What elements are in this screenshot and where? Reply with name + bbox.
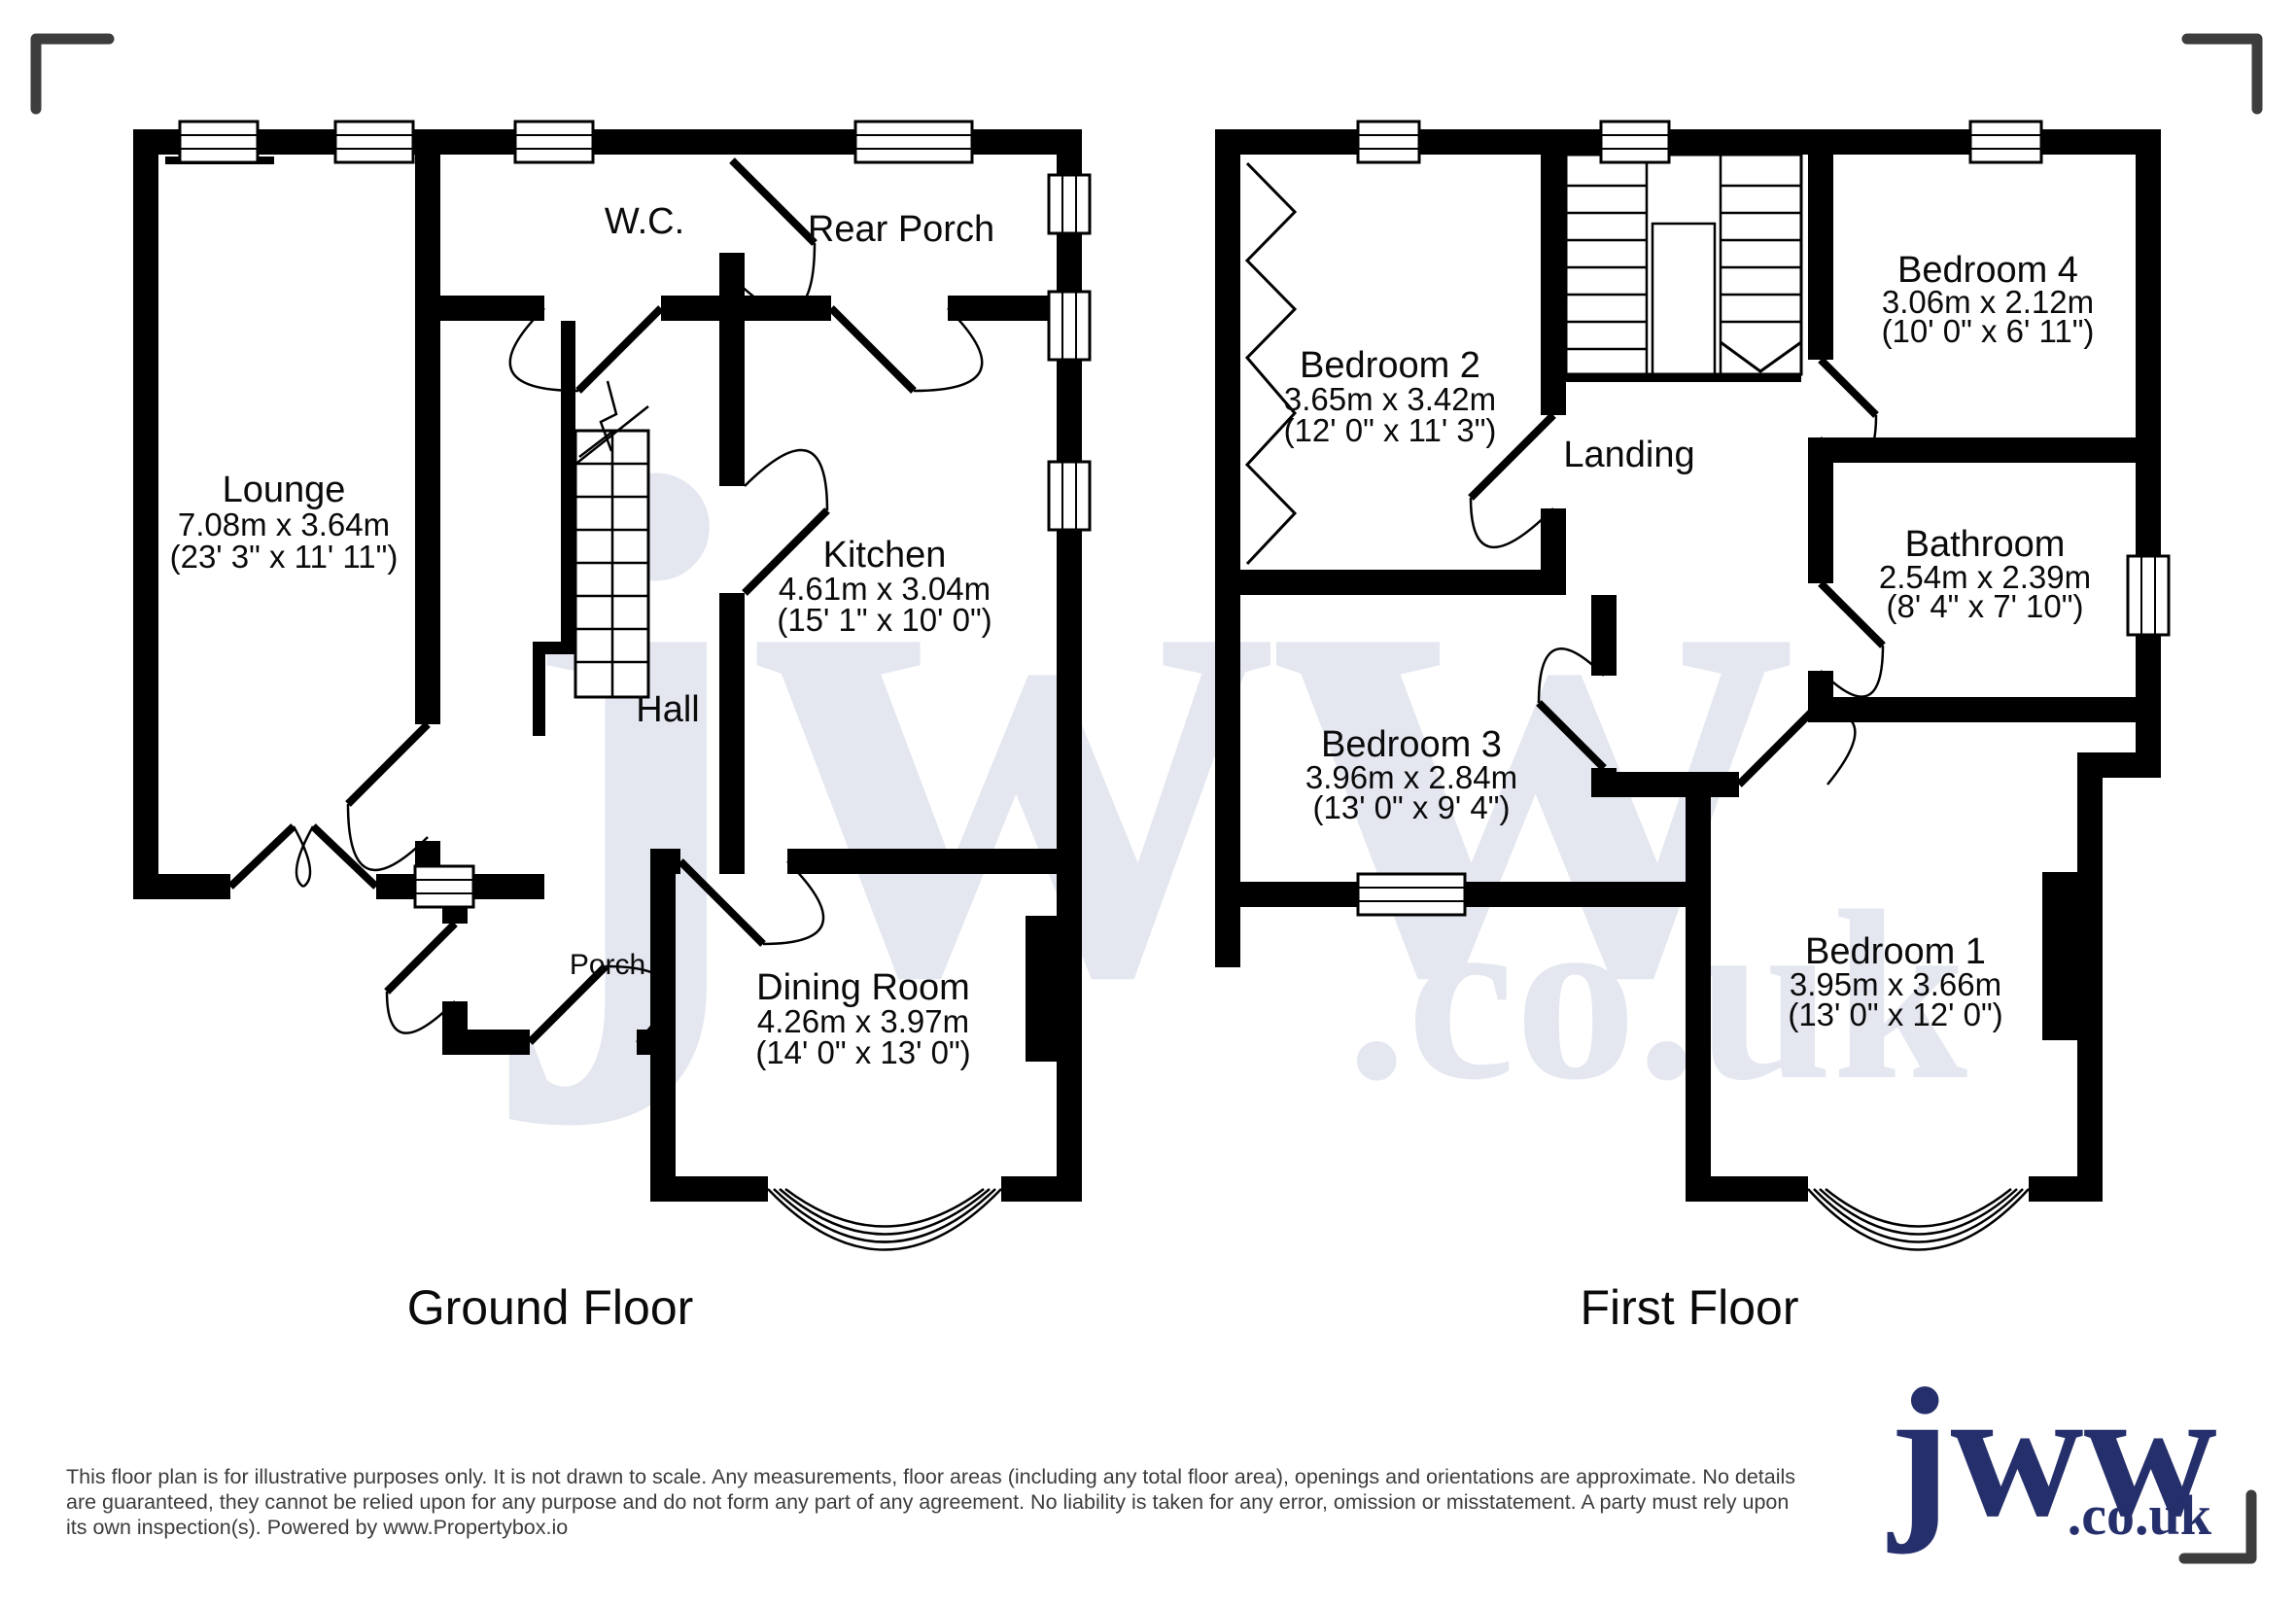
- room-dimensions-metric: 7.08m x 3.64m: [178, 507, 390, 542]
- room-label-rear-porch: Rear Porch: [808, 209, 994, 250]
- window: [335, 122, 413, 162]
- top-left-corner-mark: [36, 39, 109, 109]
- room-label-dining-room: Dining Room 4.26m x 3.97m (14' 0" x 13' …: [755, 967, 970, 1070]
- window: [1601, 122, 1669, 162]
- window: [415, 866, 473, 907]
- room-dimensions-imperial: (23' 3" x 11' 11"): [170, 539, 399, 575]
- first-floor-title: First Floor: [1581, 1280, 1799, 1335]
- room-label-bedroom1: Bedroom 1 3.95m x 3.66m (13' 0" x 12' 0"…: [1788, 931, 2002, 1032]
- room-label-bedroom3: Bedroom 3 3.96m x 2.84m (13' 0" x 9' 4"): [1305, 724, 1517, 825]
- corner-marks: [36, 39, 2257, 109]
- room-name: W.C.: [605, 201, 684, 242]
- disclaimer: This floor plan is for illustrative purp…: [66, 1465, 1795, 1539]
- window: [1049, 292, 1090, 360]
- window: [1358, 874, 1465, 915]
- floorplan-canvas: jww .co.uk: [0, 0, 2296, 1607]
- chimney-breast: [1026, 916, 1082, 1062]
- room-dimensions-imperial: (10' 0" x 6' 11"): [1882, 313, 2095, 349]
- room-name: Porch: [570, 949, 645, 981]
- disclaimer-line-1: This floor plan is for illustrative purp…: [66, 1465, 1795, 1488]
- first-floor-bay-window: [1808, 1189, 2029, 1250]
- room-name: Bedroom 2: [1300, 345, 1480, 386]
- window: [2128, 556, 2169, 635]
- window: [515, 122, 593, 162]
- brand-logo: jww .co.uk: [1887, 1351, 2251, 1558]
- room-name: Hall: [636, 689, 699, 730]
- room-name: Dining Room: [756, 967, 970, 1008]
- staircase-first: [1566, 155, 1801, 374]
- room-label-hall: Hall: [636, 689, 699, 730]
- room-label-lounge: Lounge 7.08m x 3.64m (23' 3" x 11' 11"): [170, 470, 399, 575]
- room-name: Lounge: [223, 470, 346, 510]
- room-dimensions-imperial: (12' 0" x 11' 3"): [1284, 412, 1497, 448]
- room-label-bedroom2: Bedroom 2 3.65m x 3.42m (12' 0" x 11' 3"…: [1284, 345, 1497, 448]
- logo-domain-text: .co.uk: [2068, 1484, 2212, 1547]
- ground-floor-title: Ground Floor: [407, 1280, 694, 1335]
- floorplan-page: jww .co.uk: [0, 0, 2296, 1607]
- room-label-porch: Porch: [570, 949, 645, 981]
- window: [1970, 122, 2041, 162]
- window: [1049, 175, 1090, 233]
- room-label-bathroom: Bathroom 2.54m x 2.39m (8' 4" x 7' 10"): [1879, 524, 2091, 624]
- room-dimensions-imperial: (8' 4" x 7' 10"): [1887, 588, 2084, 624]
- room-label-bedroom4: Bedroom 4 3.06m x 2.12m (10' 0" x 6' 11"…: [1882, 250, 2095, 349]
- room-label-wc: W.C.: [605, 201, 684, 242]
- disclaimer-line-3: its own inspection(s). Powered by www.Pr…: [66, 1516, 568, 1539]
- chimney-breast: [2042, 872, 2103, 1040]
- room-dimensions-imperial: (15' 1" x 10' 0"): [777, 602, 991, 638]
- ground-floor-bay-window: [768, 1189, 1001, 1250]
- room-dimensions-imperial: (14' 0" x 13' 0"): [755, 1034, 970, 1070]
- disclaimer-line-2: are guaranteed, they cannot be relied up…: [66, 1490, 1789, 1514]
- room-name: Kitchen: [823, 535, 947, 576]
- room-dimensions-imperial: (13' 0" x 9' 4"): [1313, 789, 1511, 825]
- room-label-landing: Landing: [1563, 435, 1694, 475]
- window: [180, 122, 258, 162]
- room-name: Landing: [1563, 435, 1694, 475]
- window: [1358, 122, 1419, 162]
- room-dimensions-imperial: (13' 0" x 12' 0"): [1788, 996, 2002, 1032]
- room-name: Rear Porch: [808, 209, 994, 250]
- window: [1049, 462, 1090, 530]
- window: [855, 122, 972, 162]
- top-right-corner-mark: [2187, 39, 2257, 109]
